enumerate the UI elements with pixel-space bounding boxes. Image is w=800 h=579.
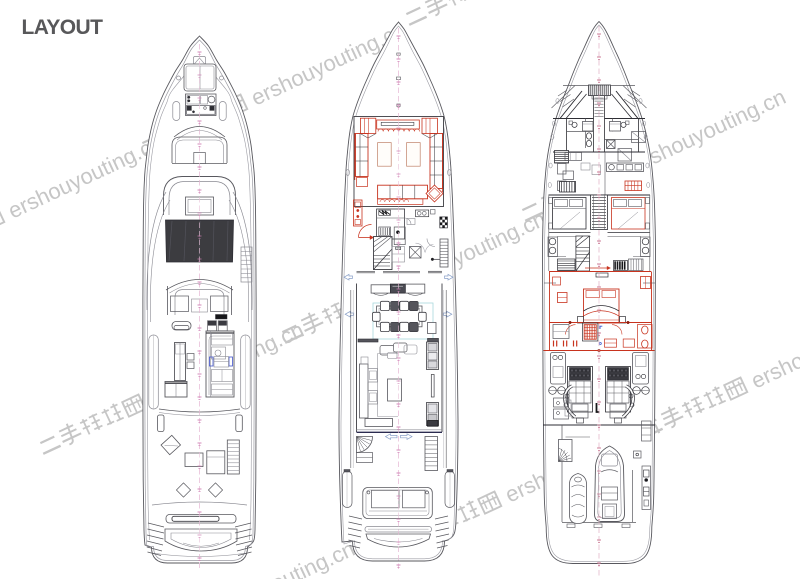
svg-text:LAYOUT: LAYOUT bbox=[22, 16, 104, 39]
